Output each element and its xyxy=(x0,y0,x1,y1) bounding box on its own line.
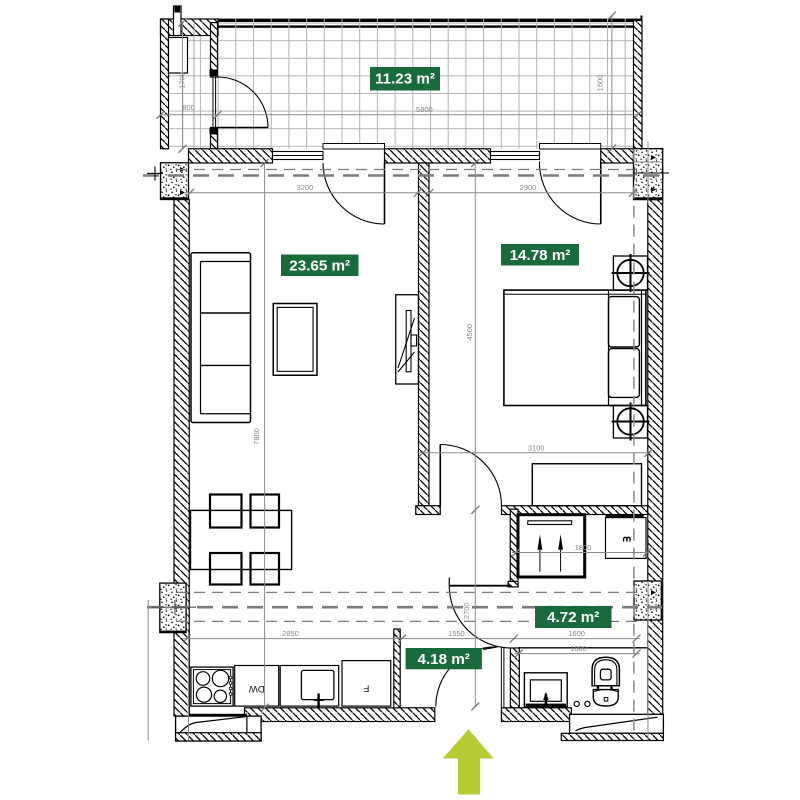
svg-text:7800: 7800 xyxy=(252,428,261,445)
svg-text:4500: 4500 xyxy=(465,324,474,341)
svg-text:11.23 m²: 11.23 m² xyxy=(375,71,435,88)
svg-text:2850: 2850 xyxy=(282,629,299,638)
svg-text:4.18 m²: 4.18 m² xyxy=(418,651,470,668)
svg-text:2900: 2900 xyxy=(520,183,537,192)
svg-text:5800: 5800 xyxy=(416,105,433,114)
svg-text:1700: 1700 xyxy=(178,72,187,89)
svg-text:1800: 1800 xyxy=(570,644,587,653)
svg-text:3100: 3100 xyxy=(528,443,545,452)
svg-text:4.72 m²: 4.72 m² xyxy=(547,609,599,626)
svg-text:14.78 m²: 14.78 m² xyxy=(510,247,571,264)
svg-text:1550: 1550 xyxy=(448,629,465,638)
svg-text:2700: 2700 xyxy=(462,602,471,619)
svg-text:F: F xyxy=(363,683,369,694)
svg-text:1600: 1600 xyxy=(568,629,585,638)
svg-text:1800: 1800 xyxy=(575,543,592,552)
svg-text:3200: 3200 xyxy=(297,183,314,192)
svg-text:23.65 m²: 23.65 m² xyxy=(289,258,350,275)
svg-text:800: 800 xyxy=(182,103,195,112)
svg-text:1600: 1600 xyxy=(596,75,605,92)
svg-text:DW: DW xyxy=(249,683,265,694)
